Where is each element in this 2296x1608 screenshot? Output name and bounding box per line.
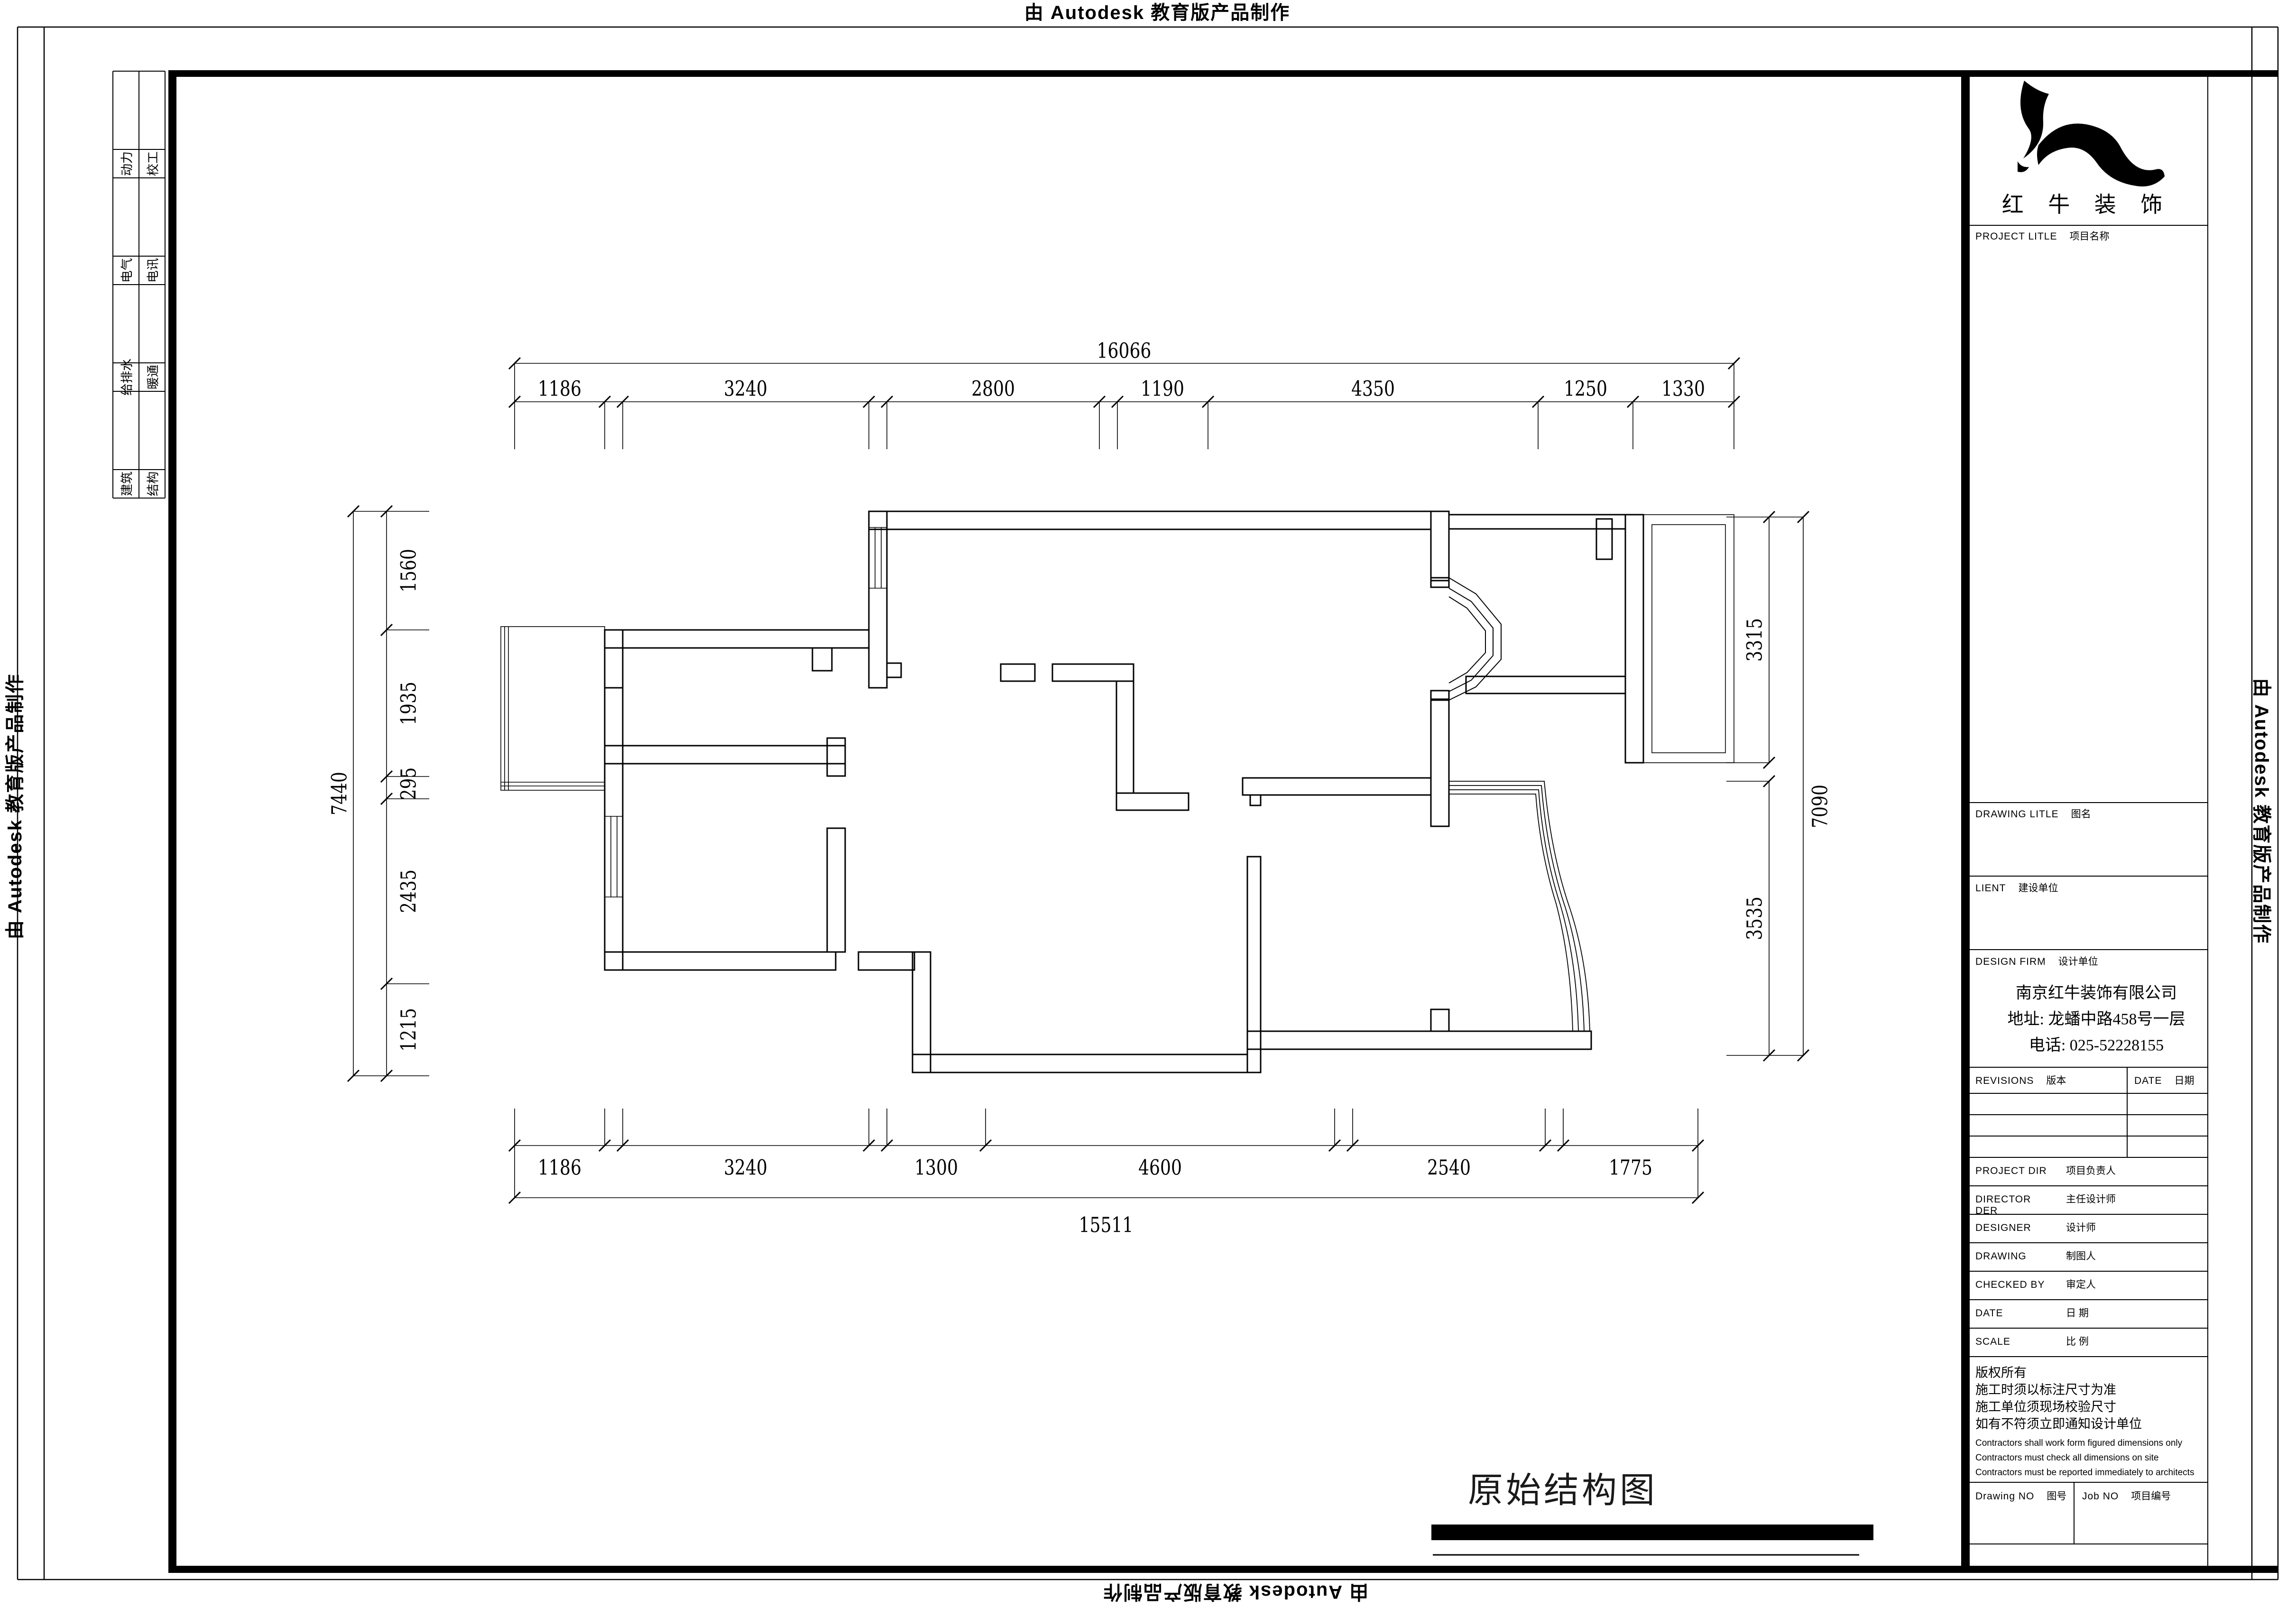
field-drawing-no-en: Drawing NO <box>1975 1491 2034 1502</box>
field-project-dir-cn: 项目负责人 <box>2066 1163 2116 1177</box>
field-drawing-person: DRAWING 制图人 <box>1975 1248 2096 1263</box>
field-drawing-person-en: DRAWING <box>1975 1251 2054 1262</box>
stamp-top: 由 Autodesk 教育版产品制作 <box>1024 0 1290 25</box>
field-drawing-no: Drawing NO 图号 <box>1975 1488 2066 1503</box>
dim-bottom-seg-1: 1186 <box>538 1156 581 1180</box>
field-job-no-cn: 项目编号 <box>2131 1488 2171 1503</box>
brand-name: 红 牛 装 饰 <box>2002 187 2172 219</box>
field-job-no-en: Job NO <box>2082 1491 2119 1502</box>
dim-top-total: 16066 <box>1097 339 1152 363</box>
field-client: LIENT 建设单位 <box>1975 880 2058 895</box>
frame-thick <box>168 70 2278 1573</box>
note-dimension-rule: 施工时须以标注尺寸为准 <box>1975 1379 2116 1398</box>
company-name: 南京红牛装饰有限公司 <box>2016 980 2177 1003</box>
company-address: 地址: 龙蟠中路458号一层 <box>2008 1006 2185 1029</box>
sign-strip-struct: 结构 <box>144 471 161 496</box>
dim-top-seg-4: 1190 <box>1141 377 1184 401</box>
field-project-title: PROJECT LITLE 项目名称 <box>1975 229 2110 243</box>
sign-strip-electric: 电气 <box>118 258 135 283</box>
dim-bottom-seg-2: 3240 <box>724 1156 767 1180</box>
field-date-en: DATE <box>1975 1308 2054 1319</box>
sign-strip-hvac: 暖通 <box>144 365 161 389</box>
curved-balcony-window <box>1449 781 1590 1031</box>
field-job-no: Job NO 项目编号 <box>2082 1488 2171 1503</box>
cad-sheet: 由 Autodesk 教育版产品制作 由 Autodesk 教育版产品制作 由 … <box>0 0 2296 1608</box>
dim-bottom-seg-4: 4600 <box>1138 1156 1182 1180</box>
field-scale-cn: 比 例 <box>2066 1334 2089 1348</box>
field-project-dir-en: PROJECT DIR <box>1975 1165 2054 1177</box>
field-drawing-no-cn: 图号 <box>2047 1488 2066 1503</box>
field-checked-by-cn: 审定人 <box>2066 1277 2096 1291</box>
field-design-firm-en: DESIGN FIRM <box>1975 956 2046 968</box>
field-checked-by: CHECKED BY 审定人 <box>1975 1277 2096 1291</box>
sign-strip-plumbing: 给排水 <box>118 359 135 396</box>
window-hatches <box>501 515 1734 897</box>
dim-top-seg-2: 3240 <box>724 377 767 401</box>
note-en-3: Contractors must be reported immediately… <box>1975 1468 2194 1478</box>
drawing-title: 原始结构图 <box>1468 1462 1658 1513</box>
dim-left-seg-2: 1935 <box>397 682 421 725</box>
sheet-border <box>18 27 2278 1580</box>
field-design-firm-cn: 设计单位 <box>2058 954 2098 968</box>
field-date-cn: 日 期 <box>2066 1305 2089 1320</box>
dim-right-seg-2: 3535 <box>1743 896 1767 940</box>
field-checked-by-en: CHECKED BY <box>1975 1279 2054 1291</box>
field-designer: DESIGNER 设计师 <box>1975 1220 2096 1234</box>
stamp-bottom: 由 Autodesk 教育版产品制作 <box>1103 1580 1368 1608</box>
field-scale-en: SCALE <box>1975 1336 2054 1348</box>
drawing-title-underline <box>1431 1525 1873 1555</box>
dim-bottom-total: 15511 <box>1079 1213 1134 1238</box>
dim-left-total: 7440 <box>328 772 352 815</box>
dim-top-seg-6: 1250 <box>1564 377 1607 401</box>
dim-left-seg-1: 1560 <box>397 549 421 592</box>
dimension-ticks <box>348 358 1809 1203</box>
note-en-2: Contractors must check all dimensions on… <box>1975 1453 2159 1463</box>
dim-left-seg-4: 2435 <box>397 869 421 913</box>
revisions-header-cn: 版本 <box>2046 1073 2066 1087</box>
field-drawing-title-en: DRAWING LITLE <box>1975 809 2059 820</box>
date-header: DATE 日期 <box>2134 1073 2194 1087</box>
bay-window <box>1449 578 1501 700</box>
field-scale: SCALE 比 例 <box>1975 1334 2089 1348</box>
sign-strip-power: 动力 <box>118 151 135 176</box>
dim-top-seg-1: 1186 <box>538 377 581 401</box>
field-client-en: LIENT <box>1975 883 2006 894</box>
date-header-en: DATE <box>2134 1075 2162 1087</box>
sign-strip-checkwork: 校工 <box>144 151 161 176</box>
field-director: DIRECTOR DER 主任设计师 <box>1975 1192 2116 1217</box>
revisions-header: REVISIONS 版本 <box>1975 1073 2066 1087</box>
field-designer-en: DESIGNER <box>1975 1222 2054 1234</box>
signature-strip-grid <box>113 71 165 498</box>
date-header-cn: 日期 <box>2174 1073 2194 1087</box>
field-drawing-title-label: DRAWING LITLE 图名 <box>1975 806 2091 821</box>
dim-left-seg-3: 295 <box>397 767 421 800</box>
dim-right-seg-1: 3315 <box>1743 618 1767 662</box>
field-date: DATE 日 期 <box>1975 1305 2089 1320</box>
dim-top-seg-3: 2800 <box>971 377 1015 401</box>
field-project-title-en: PROJECT LITLE <box>1975 231 2057 242</box>
dim-bottom-seg-5: 2540 <box>1427 1156 1471 1180</box>
dim-top-seg-5: 4350 <box>1351 377 1395 401</box>
sign-strip-telecom: 电讯 <box>144 258 161 283</box>
field-project-dir: PROJECT DIR 项目负责人 <box>1975 1163 2116 1177</box>
revisions-header-en: REVISIONS <box>1975 1075 2034 1087</box>
field-client-cn: 建设单位 <box>2019 880 2058 895</box>
note-notify-designer: 如有不符须立即通知设计单位 <box>1975 1414 2142 1432</box>
company-phone: 电话: 025-52228155 <box>2029 1032 2164 1055</box>
note-site-check: 施工单位须现场校验尺寸 <box>1975 1396 2116 1415</box>
field-drawing-person-cn: 制图人 <box>2066 1248 2096 1263</box>
note-copyright: 版权所有 <box>1975 1362 2027 1381</box>
field-design-firm: DESIGN FIRM 设计单位 <box>1975 954 2098 968</box>
field-project-title-cn: 项目名称 <box>2070 229 2110 243</box>
company-logo <box>2018 81 2165 186</box>
dim-bottom-seg-6: 1775 <box>1609 1156 1652 1180</box>
field-drawing-title-cn: 图名 <box>2071 806 2091 821</box>
field-director-en: DIRECTOR DER <box>1975 1194 2054 1217</box>
dim-right-total: 7090 <box>1808 785 1833 828</box>
field-director-cn: 主任设计师 <box>2066 1192 2116 1206</box>
plan-walls <box>605 511 1643 1072</box>
dim-left-seg-5: 1215 <box>397 1008 421 1052</box>
stamp-right: 由 Autodesk 教育版产品制作 <box>2250 678 2277 944</box>
dim-bottom-seg-3: 1300 <box>914 1156 958 1180</box>
stamp-left: 由 Autodesk 教育版产品制作 <box>0 674 27 939</box>
note-en-1: Contractors shall work form figured dime… <box>1975 1438 2182 1449</box>
field-designer-cn: 设计师 <box>2066 1220 2096 1234</box>
sign-strip-arch: 建筑 <box>118 471 135 496</box>
dim-top-seg-7: 1330 <box>1661 377 1705 401</box>
